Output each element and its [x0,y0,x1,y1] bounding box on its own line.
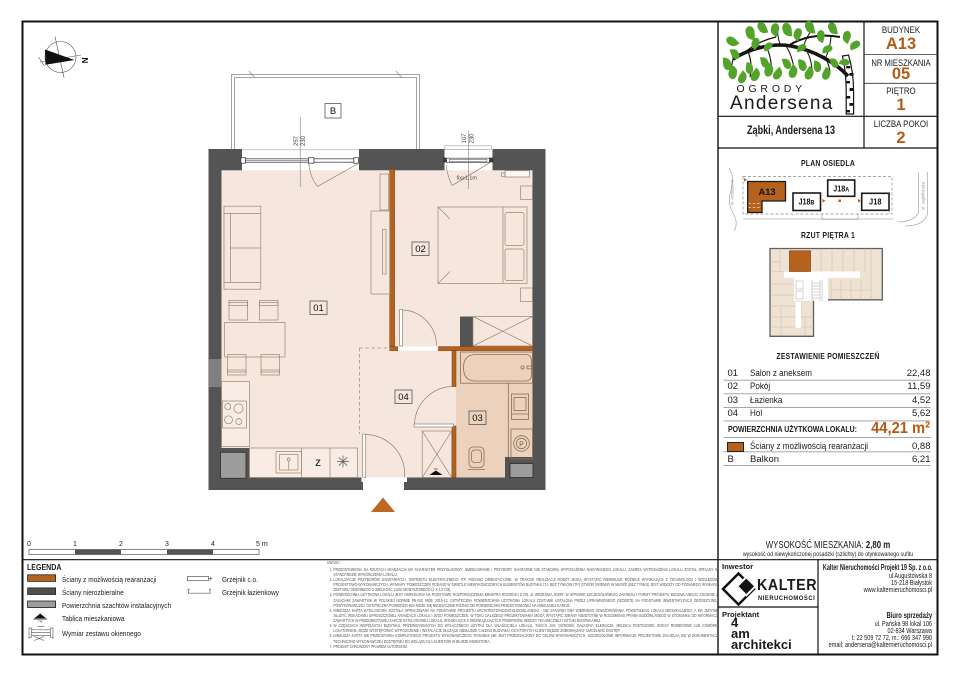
svg-text:04: 04 [398,392,409,403]
svg-text:J18: J18 [869,197,882,207]
svg-text:2: 2 [119,541,123,548]
svg-text:A13: A13 [759,187,776,197]
svg-text:03: 03 [472,413,483,424]
svg-text:fix≥1,1m: fix≥1,1m [457,176,478,182]
svg-text:5 m: 5 m [256,541,268,548]
svg-text:107: 107 [462,133,468,144]
svg-text:P: P [519,442,524,449]
svg-text:ul. Andersena: ul. Andersena [730,179,735,205]
svg-text:Z: Z [315,458,321,468]
svg-text:230: 230 [301,135,307,146]
svg-text:ul. Jagiellońska: ul. Jagiellońska [921,181,926,210]
svg-text:230: 230 [469,133,475,144]
svg-text:02: 02 [415,244,426,255]
svg-text:N: N [80,58,89,64]
svg-text:257: 257 [294,135,300,146]
svg-text:B: B [330,106,336,117]
svg-text:1: 1 [73,541,77,548]
svg-text:3: 3 [165,541,169,548]
svg-text:0: 0 [27,541,31,548]
svg-text:01: 01 [313,303,324,314]
svg-text:TM: TM [38,620,43,624]
svg-text:TM: TM [434,467,439,471]
svg-text:4: 4 [211,541,215,548]
